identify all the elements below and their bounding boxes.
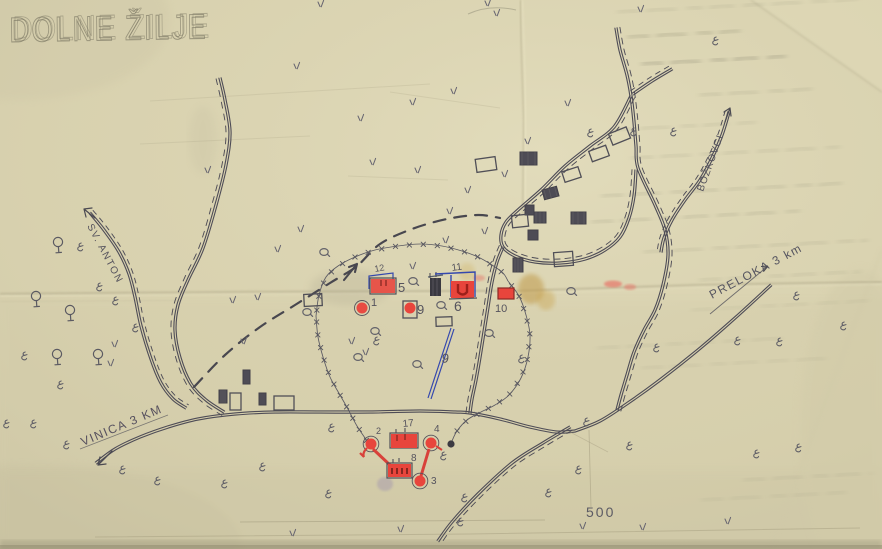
svg-text:2: 2 [376,426,381,436]
svg-text:DOLNE ŽILJE: DOLNE ŽILJE [13,6,212,49]
svg-text:10: 10 [495,303,507,315]
svg-text:3: 3 [431,476,437,487]
svg-text:4: 4 [434,424,440,435]
svg-text:1: 1 [371,297,377,309]
svg-text:12: 12 [374,262,386,274]
svg-text:17: 17 [402,418,415,430]
svg-text:500: 500 [586,504,615,520]
svg-text:9: 9 [417,302,424,317]
svg-text:8: 8 [411,453,417,464]
svg-text:11: 11 [451,262,463,274]
svg-text:6: 6 [454,298,462,314]
svg-text:5: 5 [398,280,405,295]
